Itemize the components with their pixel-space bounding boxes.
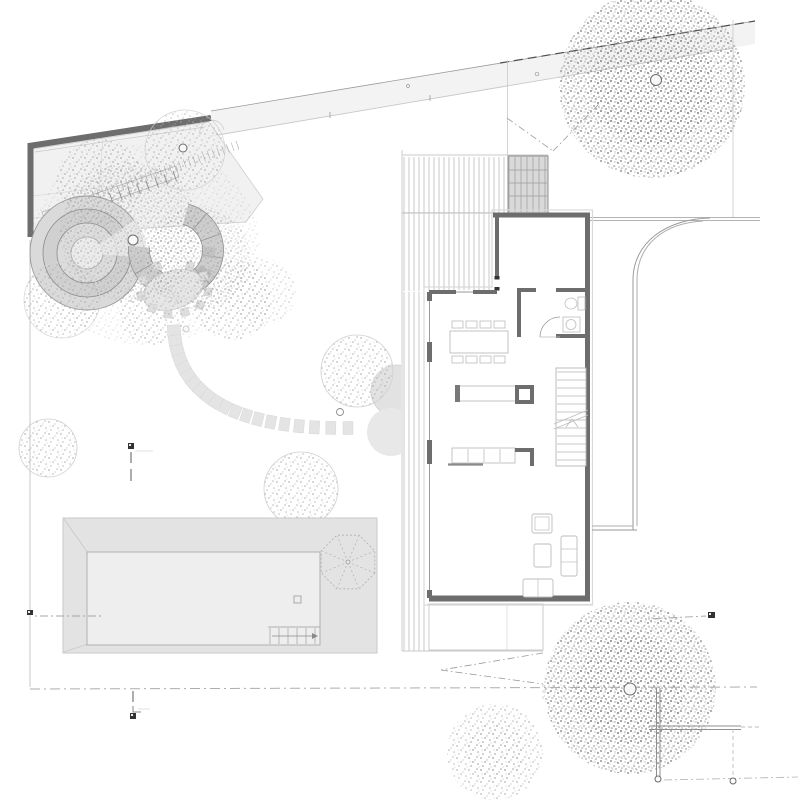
pool-area: [63, 518, 377, 653]
tree-trunk-icon: [337, 409, 344, 416]
site-plan-canvas: [0, 0, 800, 800]
tree-trunk-icon: [128, 235, 138, 245]
tree-southeast: [544, 602, 716, 774]
tree-trunk-icon: [624, 683, 636, 695]
entry-steps: [508, 156, 548, 213]
curved-walkway: [592, 218, 710, 530]
section-marker-south: [130, 691, 150, 719]
staircase: [554, 368, 588, 466]
tree-northeast: [559, 0, 745, 178]
survey-node-icon: [655, 776, 661, 782]
section-marker-west-garden: [128, 443, 153, 481]
pool-water: [87, 552, 320, 645]
tree-south-center: [447, 704, 543, 800]
survey-node-icon: [730, 778, 736, 784]
mid-garden-trees: [19, 335, 423, 526]
tree-trunk-icon: [179, 144, 187, 152]
tree-trunk-icon: [651, 75, 662, 86]
sofa-right: [561, 536, 577, 576]
south-terrace: [429, 604, 543, 650]
site-plan-drawing: [0, 0, 800, 800]
